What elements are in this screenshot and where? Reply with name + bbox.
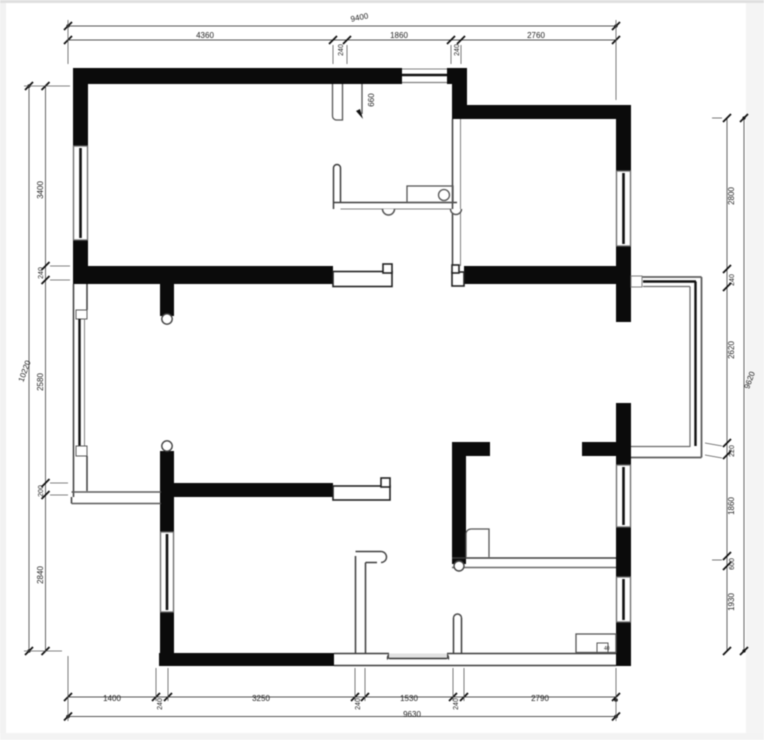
svg-text:600: 600: [729, 558, 736, 570]
svg-text:2840: 2840: [36, 566, 45, 584]
svg-text:3250: 3250: [252, 694, 270, 703]
svg-text:1930: 1930: [727, 593, 736, 611]
svg-text:40: 40: [604, 646, 610, 652]
svg-text:4360: 4360: [196, 31, 214, 40]
svg-text:660: 660: [367, 93, 376, 107]
svg-text:1400: 1400: [103, 694, 121, 703]
svg-text:9630: 9630: [403, 710, 421, 719]
svg-text:200: 200: [38, 485, 45, 497]
svg-text:3400: 3400: [36, 181, 45, 199]
svg-text:240: 240: [38, 267, 45, 279]
svg-text:240: 240: [338, 44, 345, 56]
svg-text:1530: 1530: [400, 694, 418, 703]
svg-text:220: 220: [729, 445, 736, 457]
svg-text:2760: 2760: [527, 31, 545, 40]
svg-text:2580: 2580: [36, 373, 45, 391]
svg-text:240: 240: [454, 44, 461, 56]
svg-text:2790: 2790: [531, 694, 549, 703]
svg-text:240: 240: [355, 698, 362, 710]
svg-text:240: 240: [729, 274, 736, 286]
svg-text:1860: 1860: [390, 31, 408, 40]
svg-text:1860: 1860: [727, 497, 736, 515]
svg-text:2620: 2620: [727, 341, 736, 359]
svg-text:2800: 2800: [727, 187, 736, 205]
svg-text:240: 240: [157, 698, 164, 710]
svg-text:240: 240: [453, 698, 460, 710]
